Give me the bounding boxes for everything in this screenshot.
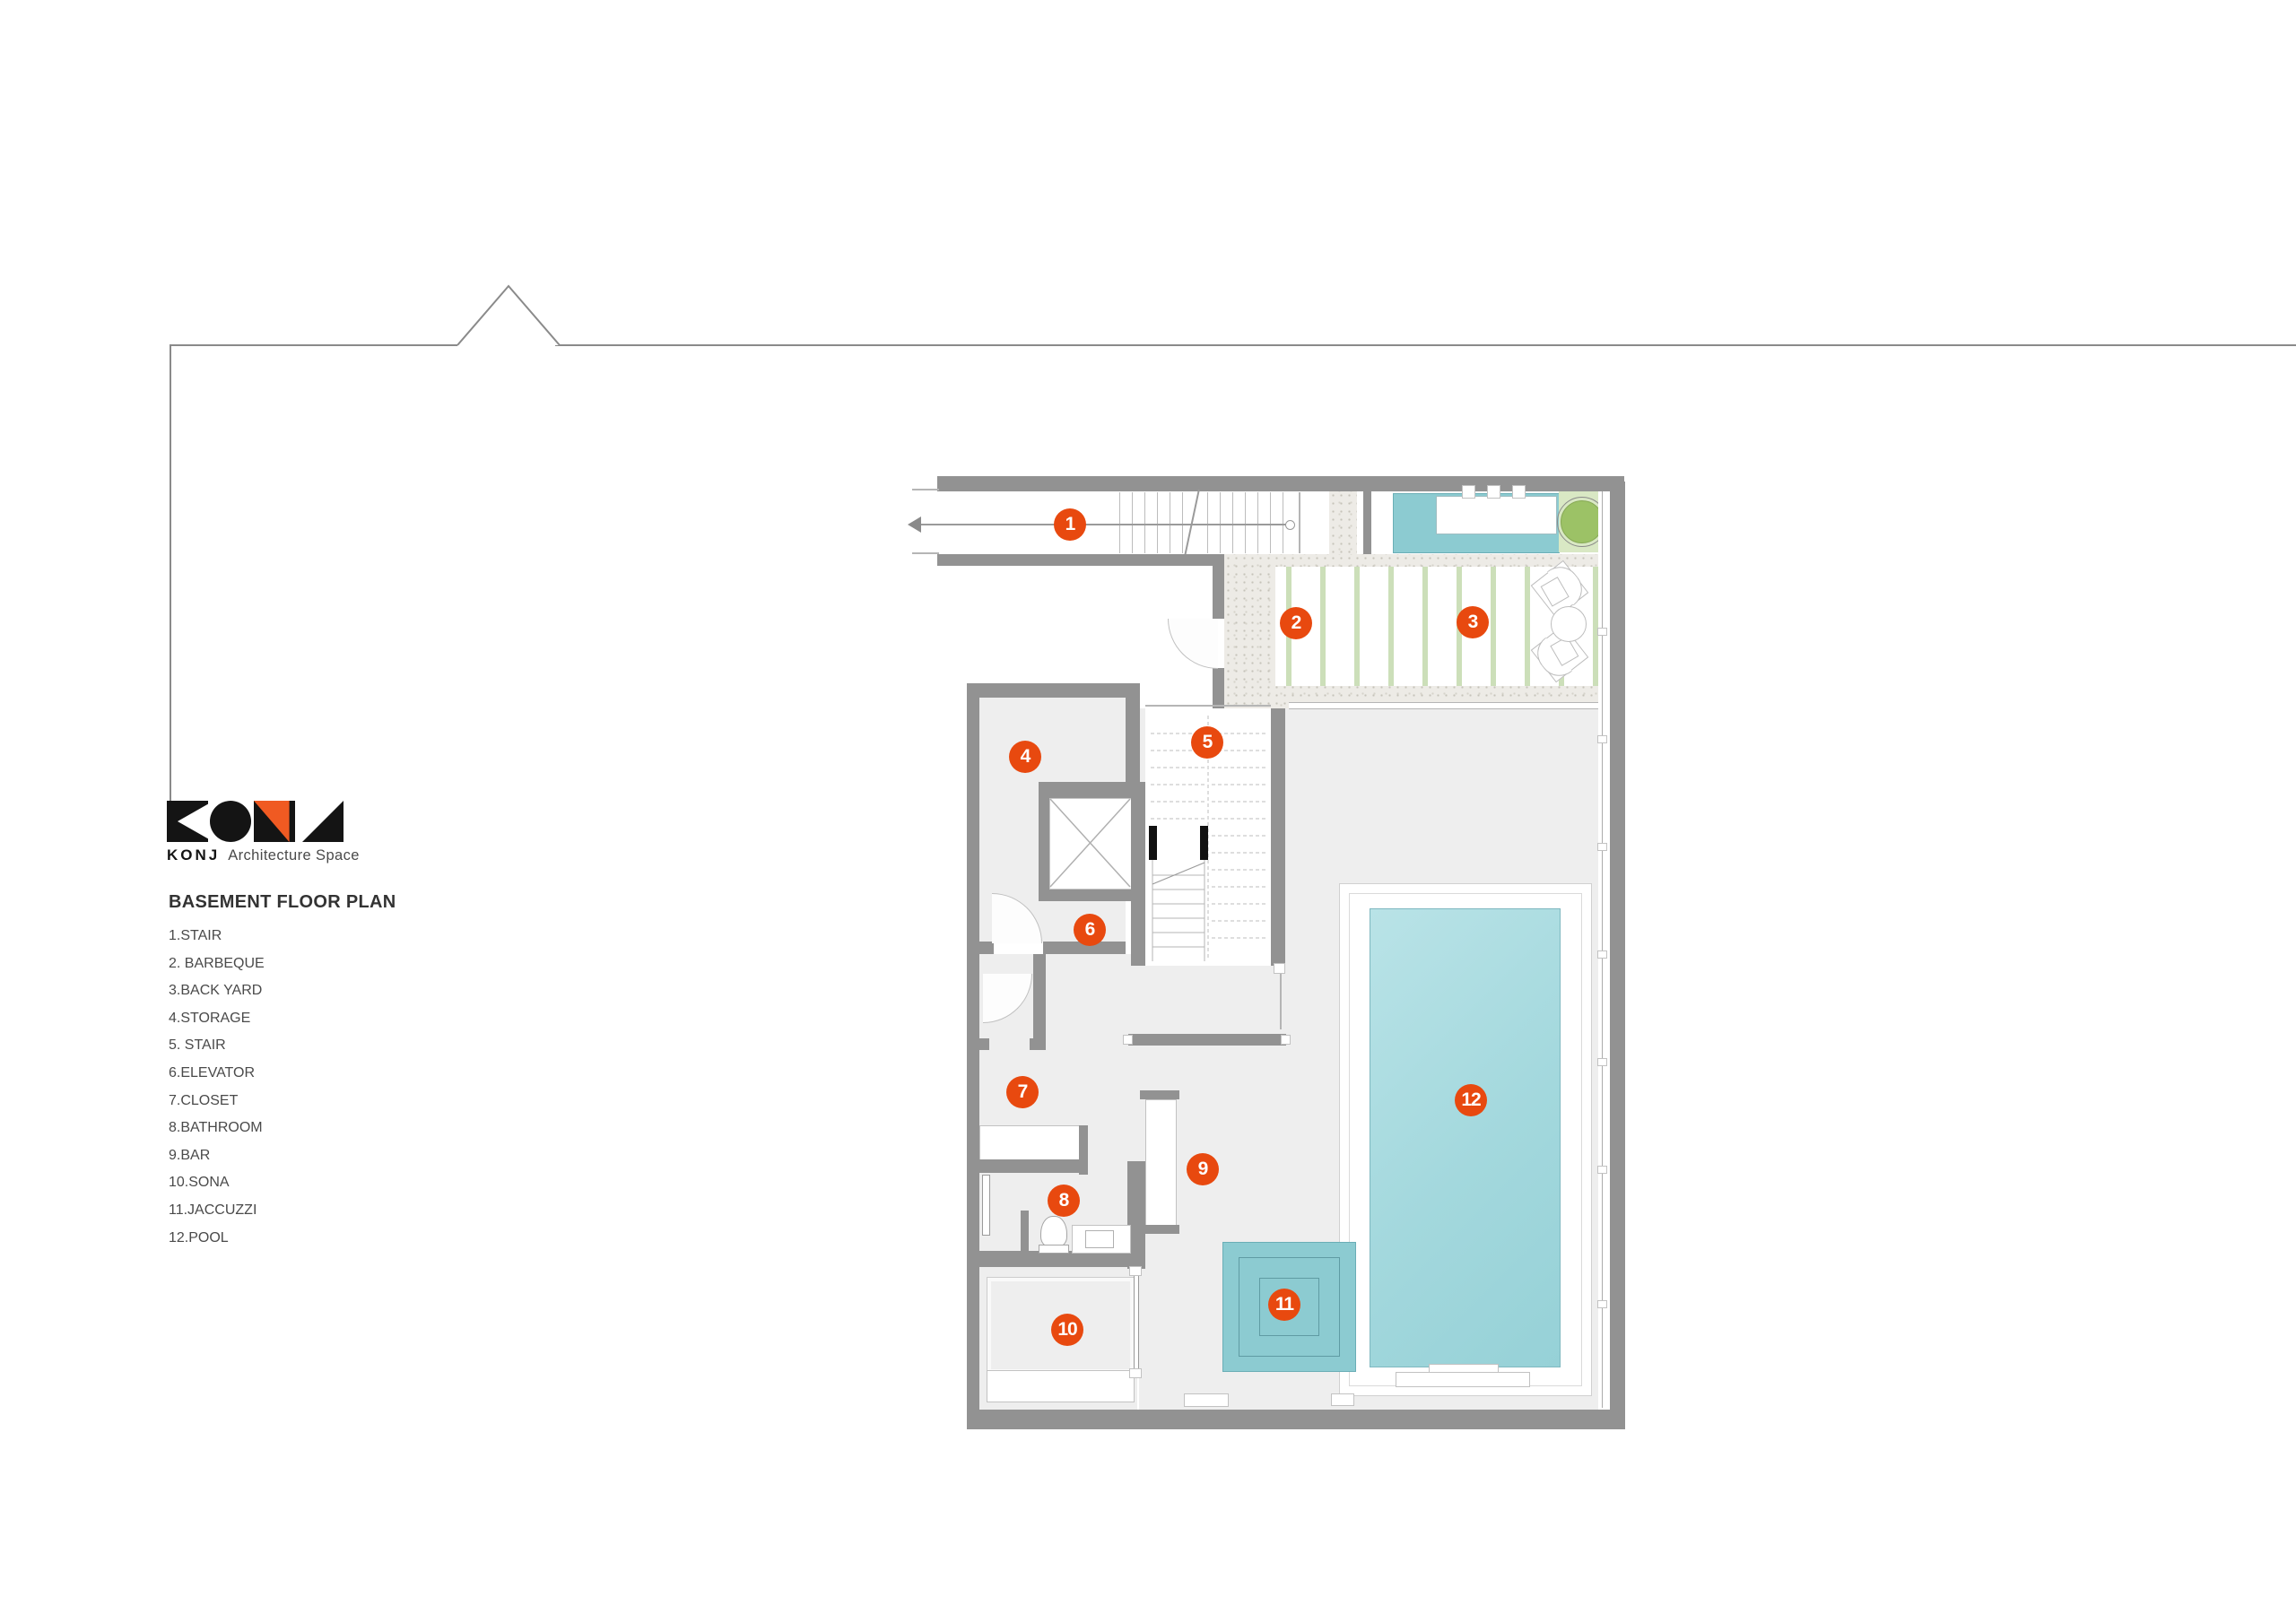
terrace-concrete-strip <box>1329 491 1357 554</box>
door-frame <box>1274 963 1285 974</box>
marker-5-stair: 5 <box>1191 726 1223 759</box>
arrow-left-icon <box>908 516 921 533</box>
stair-line-end-node <box>1285 520 1295 530</box>
closet-counter <box>979 1125 1082 1161</box>
toilet-icon <box>1040 1216 1067 1248</box>
storage-east-wall <box>1126 698 1140 782</box>
bar-counter-cap-bottom <box>1140 1225 1179 1234</box>
wall-south <box>967 1410 1625 1429</box>
marker-12-pool: 12 <box>1455 1084 1487 1116</box>
stairwell-west-wall <box>1131 782 1145 966</box>
bar-partition-wall <box>1128 1034 1286 1046</box>
door-frame <box>1129 1266 1142 1276</box>
storage-south-wall-a <box>967 942 994 954</box>
stair-1-treads <box>1119 492 1295 553</box>
stair-direction-line <box>917 524 1290 525</box>
vestibule-south-wall-b <box>1030 1038 1046 1050</box>
wall-east <box>1610 482 1625 1429</box>
glass-panel-joint <box>1597 1300 1607 1308</box>
door-frame <box>1281 1035 1291 1045</box>
marker-7-closet: 7 <box>1006 1076 1039 1108</box>
glass-panel-joint <box>1597 735 1607 743</box>
marker-11-jaccuzzi: 11 <box>1268 1289 1300 1321</box>
door-leaf-line <box>1280 974 1282 1029</box>
basement-floor-plan-sheet: { "brand": { "name": "KONJ", "tagline": … <box>0 0 2296 1623</box>
bench <box>1184 1393 1229 1407</box>
vestibule-east-wall <box>1033 954 1046 1040</box>
backyard-glass-wall <box>1289 702 1599 709</box>
sona-glass-door <box>1134 1273 1139 1372</box>
landing-east-wall-upper <box>1213 554 1224 619</box>
sink-basin-icon <box>1085 1230 1114 1248</box>
glass-panel-joint <box>1597 1058 1607 1066</box>
marker-4-storage: 4 <box>1009 741 1041 773</box>
wall-tab <box>1462 485 1475 499</box>
terrace-partition-wall <box>1363 491 1371 554</box>
pool-step <box>1396 1372 1530 1387</box>
elevator-west-wall <box>1039 798 1049 901</box>
floor-plan: 1 2 3 4 5 6 7 8 9 10 11 12 <box>0 0 2296 1623</box>
marker-10-sona: 10 <box>1051 1314 1083 1346</box>
landing-east-wall-lower <box>1213 668 1224 708</box>
marker-2-barbeque: 2 <box>1280 607 1312 639</box>
wall-tab <box>1512 485 1526 499</box>
elevator-x-icon <box>1049 798 1131 888</box>
storage-north-wall <box>967 683 1140 698</box>
glass-panel-joint <box>1597 950 1607 959</box>
glass-panel-joint <box>1597 843 1607 851</box>
door-frame <box>1123 1035 1133 1045</box>
elevator-north-wall <box>1039 782 1145 798</box>
corridor-open-edge-top <box>912 489 939 490</box>
marker-6-elevator: 6 <box>1074 914 1106 946</box>
bar-counter <box>1145 1099 1177 1227</box>
corridor-end-line <box>1299 492 1300 553</box>
bar-counter-cap-top <box>1140 1090 1179 1099</box>
tree-icon <box>1561 500 1604 543</box>
vestibule-south-wall-a <box>970 1038 989 1050</box>
elevator-south-wall <box>1039 888 1145 901</box>
stairwell-east-wall <box>1271 708 1285 966</box>
barbeque-counter-top <box>1436 496 1557 534</box>
wall-tab <box>1487 485 1500 499</box>
pool-water <box>1370 908 1561 1367</box>
marker-9-bar: 9 <box>1187 1153 1219 1185</box>
marker-8-bathroom: 8 <box>1048 1185 1080 1217</box>
stairwell-top-line <box>1145 705 1271 707</box>
glass-panel-joint <box>1597 1166 1607 1174</box>
glass-panel-joint <box>1597 628 1607 636</box>
closet-bathroom-wall <box>979 1159 1088 1173</box>
bathroom-stub-wall <box>1021 1211 1029 1253</box>
door-frame <box>1129 1368 1142 1378</box>
garden-door-swing <box>1168 619 1218 669</box>
marker-3-backyard: 3 <box>1457 606 1489 638</box>
corridor-open-edge-bottom <box>912 552 939 554</box>
round-table-icon <box>1551 606 1587 642</box>
marker-1-stair: 1 <box>1054 508 1086 541</box>
toilet-tank <box>1039 1245 1069 1254</box>
sona-bench <box>987 1370 1135 1402</box>
bench <box>1331 1393 1354 1406</box>
corridor-south-wall <box>937 554 1213 566</box>
shower-glass <box>982 1175 990 1236</box>
